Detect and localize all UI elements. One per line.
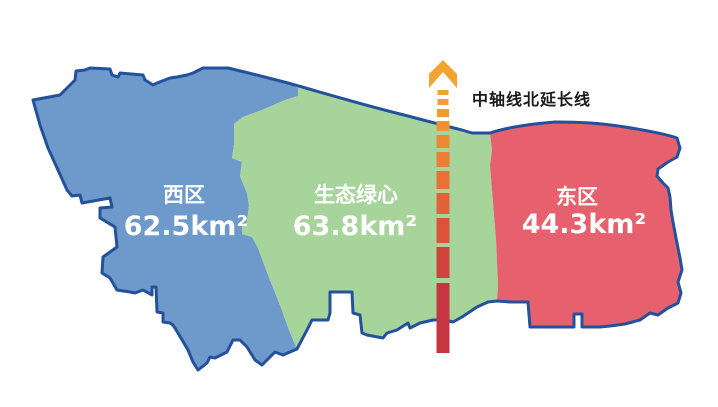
central-axis-dashed-line <box>437 90 450 353</box>
east-district-name: 东区 <box>556 185 598 209</box>
axis-dash <box>437 171 450 189</box>
west-district-area: 62.5km² <box>124 211 249 242</box>
north-arrow-icon <box>429 60 457 88</box>
district-map: 西区 62.5km² 生态绿心 63.8km² 东区 44.3km² 中轴线北延… <box>0 0 718 407</box>
green-heart-name: 生态绿心 <box>314 183 398 207</box>
planning-map-canvas: 西区 62.5km² 生态绿心 63.8km² 东区 44.3km² 中轴线北延… <box>0 0 718 407</box>
axis-dash <box>437 247 450 278</box>
axis-dash <box>437 135 450 148</box>
axis-dash <box>437 218 450 243</box>
west-district-name: 西区 <box>163 183 205 207</box>
central-axis-label: 中轴线北延长线 <box>472 90 591 109</box>
axis-dash <box>437 152 450 167</box>
axis-dash <box>438 99 449 105</box>
axis-dash <box>437 283 450 353</box>
axis-dash <box>437 109 449 117</box>
green-heart-area: 63.8km² <box>293 211 418 242</box>
east-district-area: 44.3km² <box>522 209 647 240</box>
axis-dash <box>438 90 449 95</box>
axis-dash <box>437 121 450 131</box>
axis-dash <box>437 193 450 214</box>
